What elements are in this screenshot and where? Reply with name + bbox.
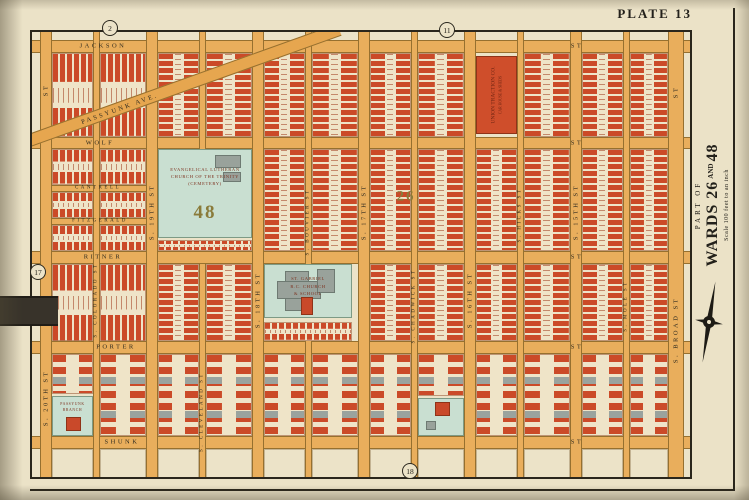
city-block xyxy=(630,449,668,479)
city-block xyxy=(100,264,146,341)
city-block xyxy=(582,264,623,341)
street-label: S. COLORADO ST xyxy=(94,262,99,337)
street-label: S. 18TH ST xyxy=(255,272,262,328)
city-block xyxy=(312,449,358,479)
city-block xyxy=(100,225,146,251)
city-block xyxy=(630,264,668,341)
street-label: S. CHADWICK ST xyxy=(412,269,417,344)
site-label-vertical: UNION TRACTION CO.CAR HOUSE & SHEDS xyxy=(490,66,503,123)
city-block xyxy=(476,264,517,341)
city-block xyxy=(52,354,93,394)
map-layers: EVANGELICAL LUTHERANCHURCH OF THE TRINIT… xyxy=(30,30,692,479)
city-block xyxy=(370,264,411,341)
union-traction-car-house: UNION TRACTION CO.CAR HOUSE & SHEDS xyxy=(476,56,517,134)
margin-and: AND xyxy=(707,164,715,179)
site-label: ST. GABRIELR.C. CHURCH& SCHOOL xyxy=(267,275,350,297)
trinity-lutheran-cemetery: EVANGELICAL LUTHERANCHURCH OF THE TRINIT… xyxy=(158,149,252,238)
street-label: S. CLEVELAND ST xyxy=(200,372,205,452)
red-building xyxy=(435,402,450,416)
street-s-17th-st xyxy=(358,30,370,479)
gray-building xyxy=(426,421,436,430)
city-block xyxy=(370,354,411,436)
margin-wards: WARDS 26AND48 xyxy=(704,144,722,267)
city-block xyxy=(100,354,146,436)
margin-wards-a: WARDS 26 xyxy=(704,181,721,267)
site-label: PASSYUNKBRANCH xyxy=(54,401,91,413)
city-block xyxy=(264,149,305,251)
street-s-18th-st xyxy=(252,30,264,479)
city-block xyxy=(418,264,464,341)
street-label: ST xyxy=(571,140,584,147)
city-block xyxy=(370,53,411,137)
city-block xyxy=(630,149,668,251)
city-block xyxy=(524,53,570,137)
street-label: JACKSON xyxy=(80,43,127,50)
city-block xyxy=(582,354,623,436)
street-label: ST xyxy=(571,439,584,446)
plate-ref-11: 11 xyxy=(439,22,455,38)
street-label: S. 16TH ST xyxy=(467,272,474,328)
city-block xyxy=(206,449,252,479)
city-block xyxy=(524,354,570,436)
street-label: PORTER xyxy=(96,344,136,351)
margin-wards-b: 48 xyxy=(704,144,721,162)
plate-title-text: PLATE 13 xyxy=(617,6,692,21)
plate-ref-2: 2 xyxy=(102,20,118,36)
atlas-plate-photo: { "page": { "plate_label": "PLATE 13", "… xyxy=(0,0,749,500)
plate-title: PLATE 13 xyxy=(500,6,692,22)
street-label: ST xyxy=(43,84,50,97)
street-label: ST xyxy=(571,344,584,351)
street-label: S. 17TH ST xyxy=(361,184,368,240)
margin-scale: Scale 100 feet to an inch xyxy=(724,169,730,241)
city-block xyxy=(264,449,305,479)
street-s-hicks-st xyxy=(517,30,524,479)
street-s-16th-st xyxy=(464,30,476,479)
atlas-page: EVANGELICAL LUTHERANCHURCH OF THE TRINIT… xyxy=(0,0,749,500)
city-block xyxy=(100,192,146,218)
street-label: S. BROAD ST xyxy=(673,297,680,363)
ward-number: 48 xyxy=(194,202,217,224)
city-block xyxy=(476,149,517,251)
city-block xyxy=(158,354,199,436)
city-block xyxy=(630,53,668,137)
plate-ref-17: 17 xyxy=(30,264,46,280)
street-label: S. HICKS ST xyxy=(518,188,523,243)
street-label: SHUNK xyxy=(105,439,140,446)
street-label: RITNER xyxy=(84,254,122,261)
street-label: S. 19TH ST xyxy=(149,184,156,240)
street-label: S. 20TH ST xyxy=(43,370,50,426)
street-label: WOLF xyxy=(86,140,114,147)
street-label: ST xyxy=(673,86,680,99)
street-s-mole-st xyxy=(623,30,630,479)
street-label: S. MOLE ST xyxy=(624,280,629,332)
city-block xyxy=(158,240,252,251)
city-block xyxy=(418,149,464,251)
city-block xyxy=(100,149,146,185)
city-block xyxy=(312,354,358,436)
binding-tab xyxy=(0,296,58,326)
street-s-bouvier-st xyxy=(305,341,312,479)
red-building xyxy=(66,417,81,431)
city-block xyxy=(418,449,464,479)
city-block xyxy=(582,449,623,479)
city-block xyxy=(476,354,517,436)
city-block xyxy=(418,354,464,396)
street-label: S. 15TH ST xyxy=(573,184,580,240)
street-label: S. BOUVIER ST xyxy=(306,188,311,255)
city-block xyxy=(524,264,570,341)
city-block xyxy=(206,354,252,436)
city-block xyxy=(52,149,93,185)
plate-outer-border-bottom xyxy=(30,489,735,491)
city-block xyxy=(264,354,305,436)
plate-outer-border-right xyxy=(733,8,735,491)
city-block xyxy=(264,53,305,137)
ward-number: 26 xyxy=(397,189,416,206)
city-block xyxy=(52,449,93,479)
map-area: EVANGELICAL LUTHERANCHURCH OF THE TRINIT… xyxy=(30,30,692,479)
green-parcel xyxy=(418,398,464,436)
site-label: EVANGELICAL LUTHERANCHURCH OF THE TRINIT… xyxy=(161,166,249,188)
plate-ref-18: 18 xyxy=(402,463,418,479)
city-block xyxy=(476,449,517,479)
city-block xyxy=(100,449,146,479)
city-block xyxy=(524,149,570,251)
street-label: ST xyxy=(571,254,584,261)
city-block xyxy=(158,264,199,341)
street-s-chadwick-st xyxy=(411,30,418,479)
street-label: FITZGERALD xyxy=(72,219,128,224)
city-block xyxy=(52,264,93,341)
margin-part-of: PART OF xyxy=(694,181,702,229)
city-block xyxy=(582,53,623,137)
city-block xyxy=(52,192,93,218)
passyunk-branch-parcel: PASSYUNKBRANCH xyxy=(52,396,93,436)
street-s-cleveland-st xyxy=(199,30,206,149)
city-block xyxy=(418,53,464,137)
city-block xyxy=(312,149,358,251)
city-block xyxy=(158,449,199,479)
street-label: ST xyxy=(571,43,584,50)
city-block xyxy=(630,354,668,436)
margin-title: PART OF WARDS 26AND48 Scale 100 feet to … xyxy=(667,145,749,265)
city-block xyxy=(52,225,93,251)
city-block xyxy=(206,264,252,341)
red-building xyxy=(301,297,313,315)
street-label: CANTRELL xyxy=(75,186,121,191)
city-block xyxy=(264,322,352,341)
city-block xyxy=(582,149,623,251)
city-block xyxy=(524,449,570,479)
city-block xyxy=(312,53,358,137)
st-gabriel-rc-church: ST. GABRIELR.C. CHURCH& SCHOOL xyxy=(264,264,352,318)
